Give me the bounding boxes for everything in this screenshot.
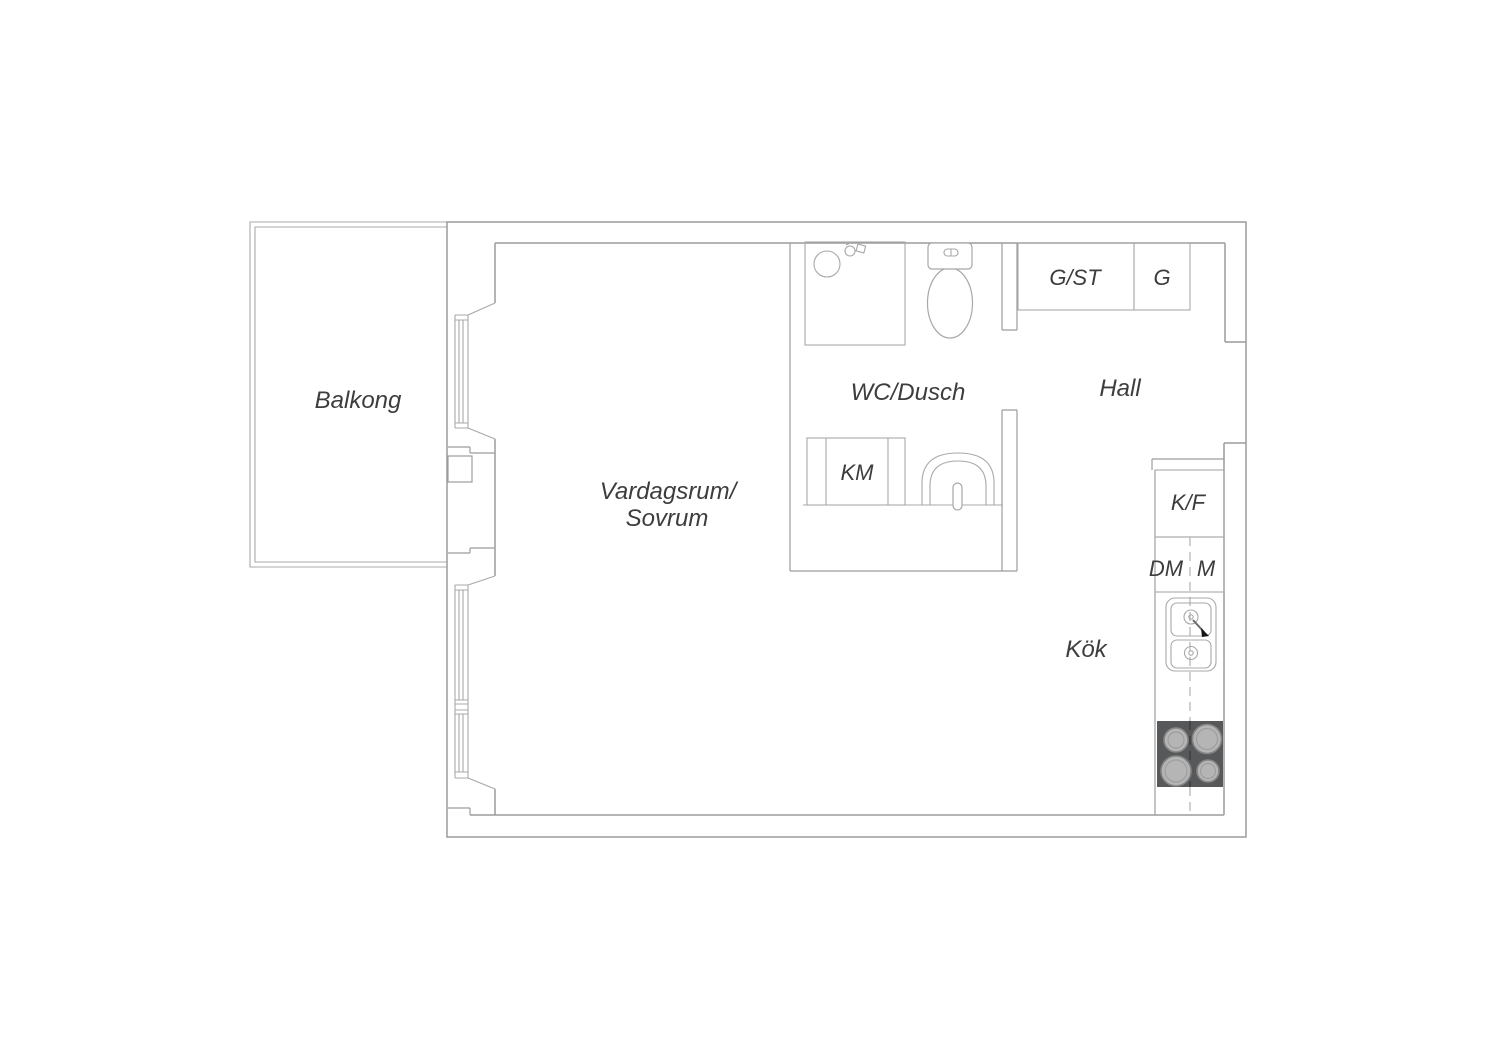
room-label-living-line1: Vardagsrum/ (600, 478, 739, 505)
floor-plan: Balkong Vardagsrum/ Sovrum WC/Dusch Hall… (0, 0, 1500, 1060)
shower-drain-icon (814, 251, 840, 277)
kitchen-sink-icon (1166, 598, 1216, 671)
stove-burners-icon (1157, 721, 1223, 787)
bathroom-walls (790, 243, 1017, 571)
room-label-living-line2: Sovrum (626, 505, 709, 532)
room-label-balcony: Balkong (315, 387, 402, 414)
living-room-window (455, 576, 495, 789)
toilet-icon (928, 243, 973, 338)
shower (805, 242, 905, 345)
washbasin-icon (922, 453, 994, 510)
room-label-hall: Hall (1099, 375, 1141, 402)
fixture-label-closet-large: G/ST (1049, 265, 1102, 290)
fixture-label-washing-machine: KM (841, 460, 875, 485)
room-label-kitchen: Kök (1065, 636, 1108, 663)
balcony-door-window (455, 303, 495, 439)
exterior-walls (447, 222, 1246, 837)
shower-head-icon (845, 242, 866, 256)
fixture-label-fridge-freezer: K/F (1171, 490, 1207, 515)
floor-plan-drawing: Balkong Vardagsrum/ Sovrum WC/Dusch Hall… (0, 0, 1500, 1060)
fixture-label-microwave: M (1197, 556, 1216, 581)
fixture-label-dishwasher: DM (1149, 556, 1184, 581)
faucet-arrow-icon (1193, 620, 1209, 637)
room-label-bathroom: WC/Dusch (851, 379, 966, 406)
fixture-label-closet-small: G (1153, 265, 1170, 290)
wall-pier (448, 456, 472, 482)
